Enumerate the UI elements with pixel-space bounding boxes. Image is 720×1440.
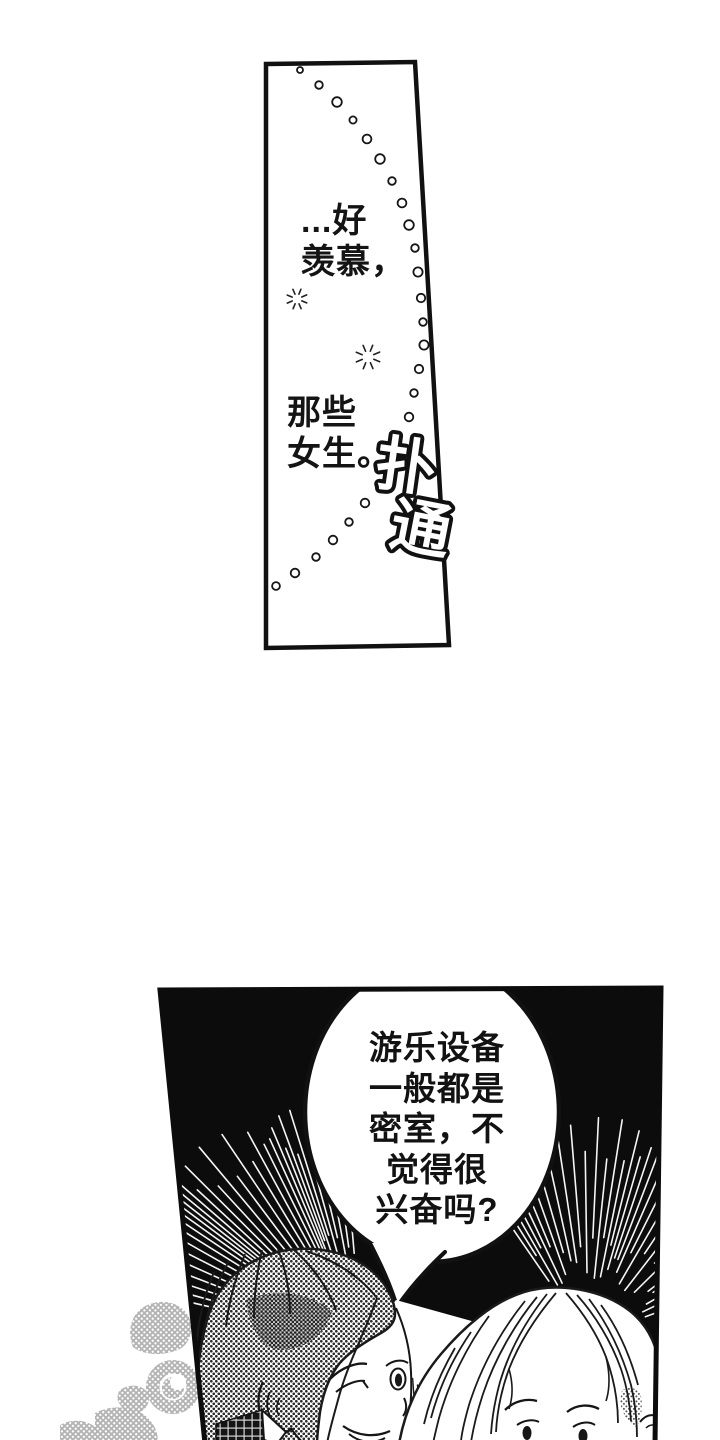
monologue-line: 那些	[287, 393, 392, 434]
bubble-line: 密室，不	[309, 1109, 565, 1150]
far-eye-pupil	[395, 1374, 402, 1387]
watermark-mascot	[60, 1302, 200, 1440]
trail-dot	[405, 413, 414, 422]
trail-dot	[411, 244, 419, 252]
trail-dot	[312, 553, 320, 561]
trail-dot	[291, 569, 300, 578]
trail-dot	[419, 318, 427, 326]
trail-dot	[415, 365, 423, 373]
mascot-cap	[130, 1302, 191, 1354]
bubble-line: 兴奋吗?	[309, 1190, 565, 1231]
trail-dot	[345, 518, 353, 526]
sfx-putong-char-2: 通	[385, 490, 457, 567]
mascot-body	[95, 1407, 158, 1440]
trail-dot	[272, 582, 280, 590]
monologue-block-2: 那些 女生。	[287, 393, 392, 475]
speech-bubble-text: 游乐设备 一般都是 密室，不 觉得很 兴奋吗?	[309, 1028, 565, 1231]
trail-dot	[375, 154, 385, 164]
monologue-line: 女生。	[287, 434, 392, 475]
trail-dot	[297, 67, 303, 73]
monologue-line: ...好	[301, 201, 406, 242]
trail-dot	[410, 389, 418, 397]
monologue-block-1: ...好 羡慕，	[301, 201, 406, 283]
trail-dot	[419, 340, 428, 349]
trail-dot	[361, 499, 370, 508]
trail-dot	[329, 536, 338, 545]
trail-dot	[413, 267, 422, 276]
comic-page: 扑 通	[0, 0, 720, 1440]
bubble-line: 游乐设备	[309, 1028, 565, 1069]
trail-dot	[349, 116, 356, 123]
bubble-line: 觉得很	[309, 1150, 565, 1191]
trail-dot	[388, 177, 396, 185]
top-panel: 扑 通	[266, 62, 457, 648]
monologue-line: 羡慕，	[301, 242, 406, 283]
bubble-line: 一般都是	[309, 1069, 565, 1110]
right-pupil-1	[523, 1426, 532, 1440]
trail-dot	[417, 294, 425, 302]
mascot-pupil-highlight	[170, 1374, 186, 1390]
trail-dot	[315, 81, 323, 89]
trail-dot	[363, 135, 372, 144]
trail-dot	[332, 97, 342, 107]
